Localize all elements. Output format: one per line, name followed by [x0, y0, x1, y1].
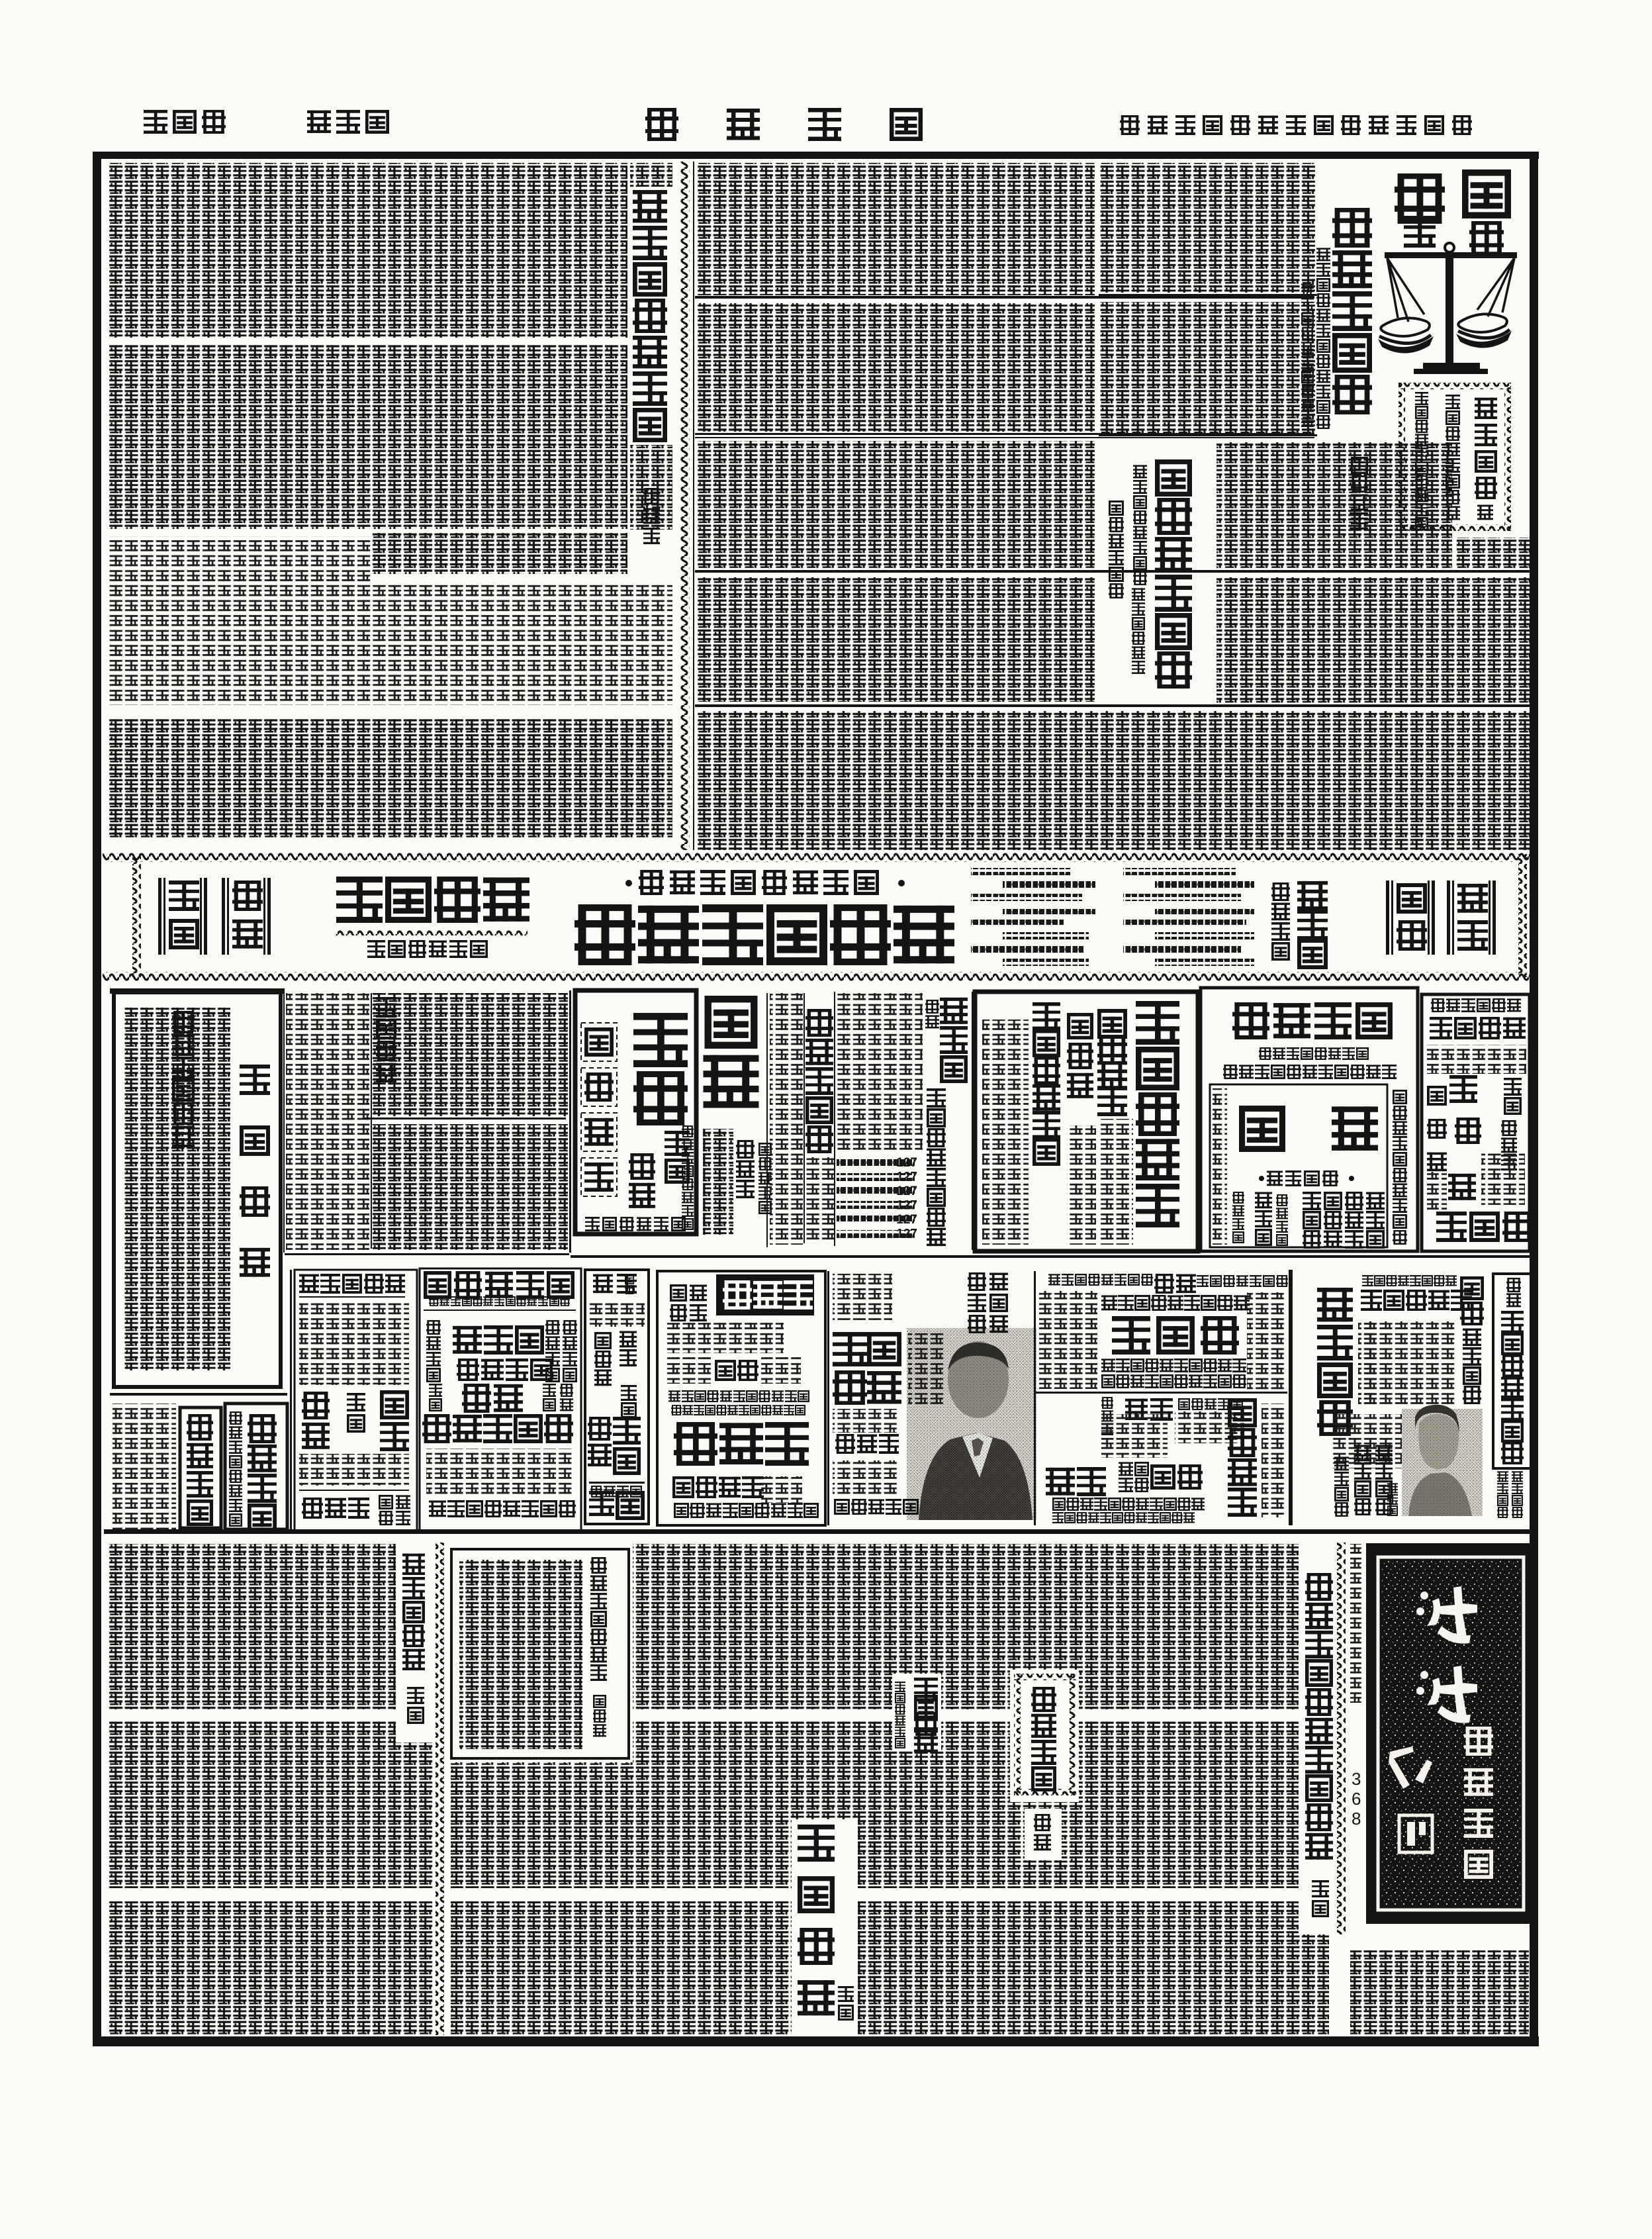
svg-text:127: 127 — [896, 1213, 917, 1227]
svg-text:127: 127 — [896, 1184, 917, 1198]
svg-text:6: 6 — [1352, 1789, 1361, 1809]
svg-text:3: 3 — [1352, 1769, 1361, 1789]
svg-text:127: 127 — [896, 1156, 917, 1170]
svg-text:127: 127 — [896, 1199, 917, 1213]
svg-text:8: 8 — [1352, 1809, 1361, 1829]
svg-text:127: 127 — [896, 1227, 917, 1241]
svg-text:127: 127 — [896, 1170, 917, 1184]
